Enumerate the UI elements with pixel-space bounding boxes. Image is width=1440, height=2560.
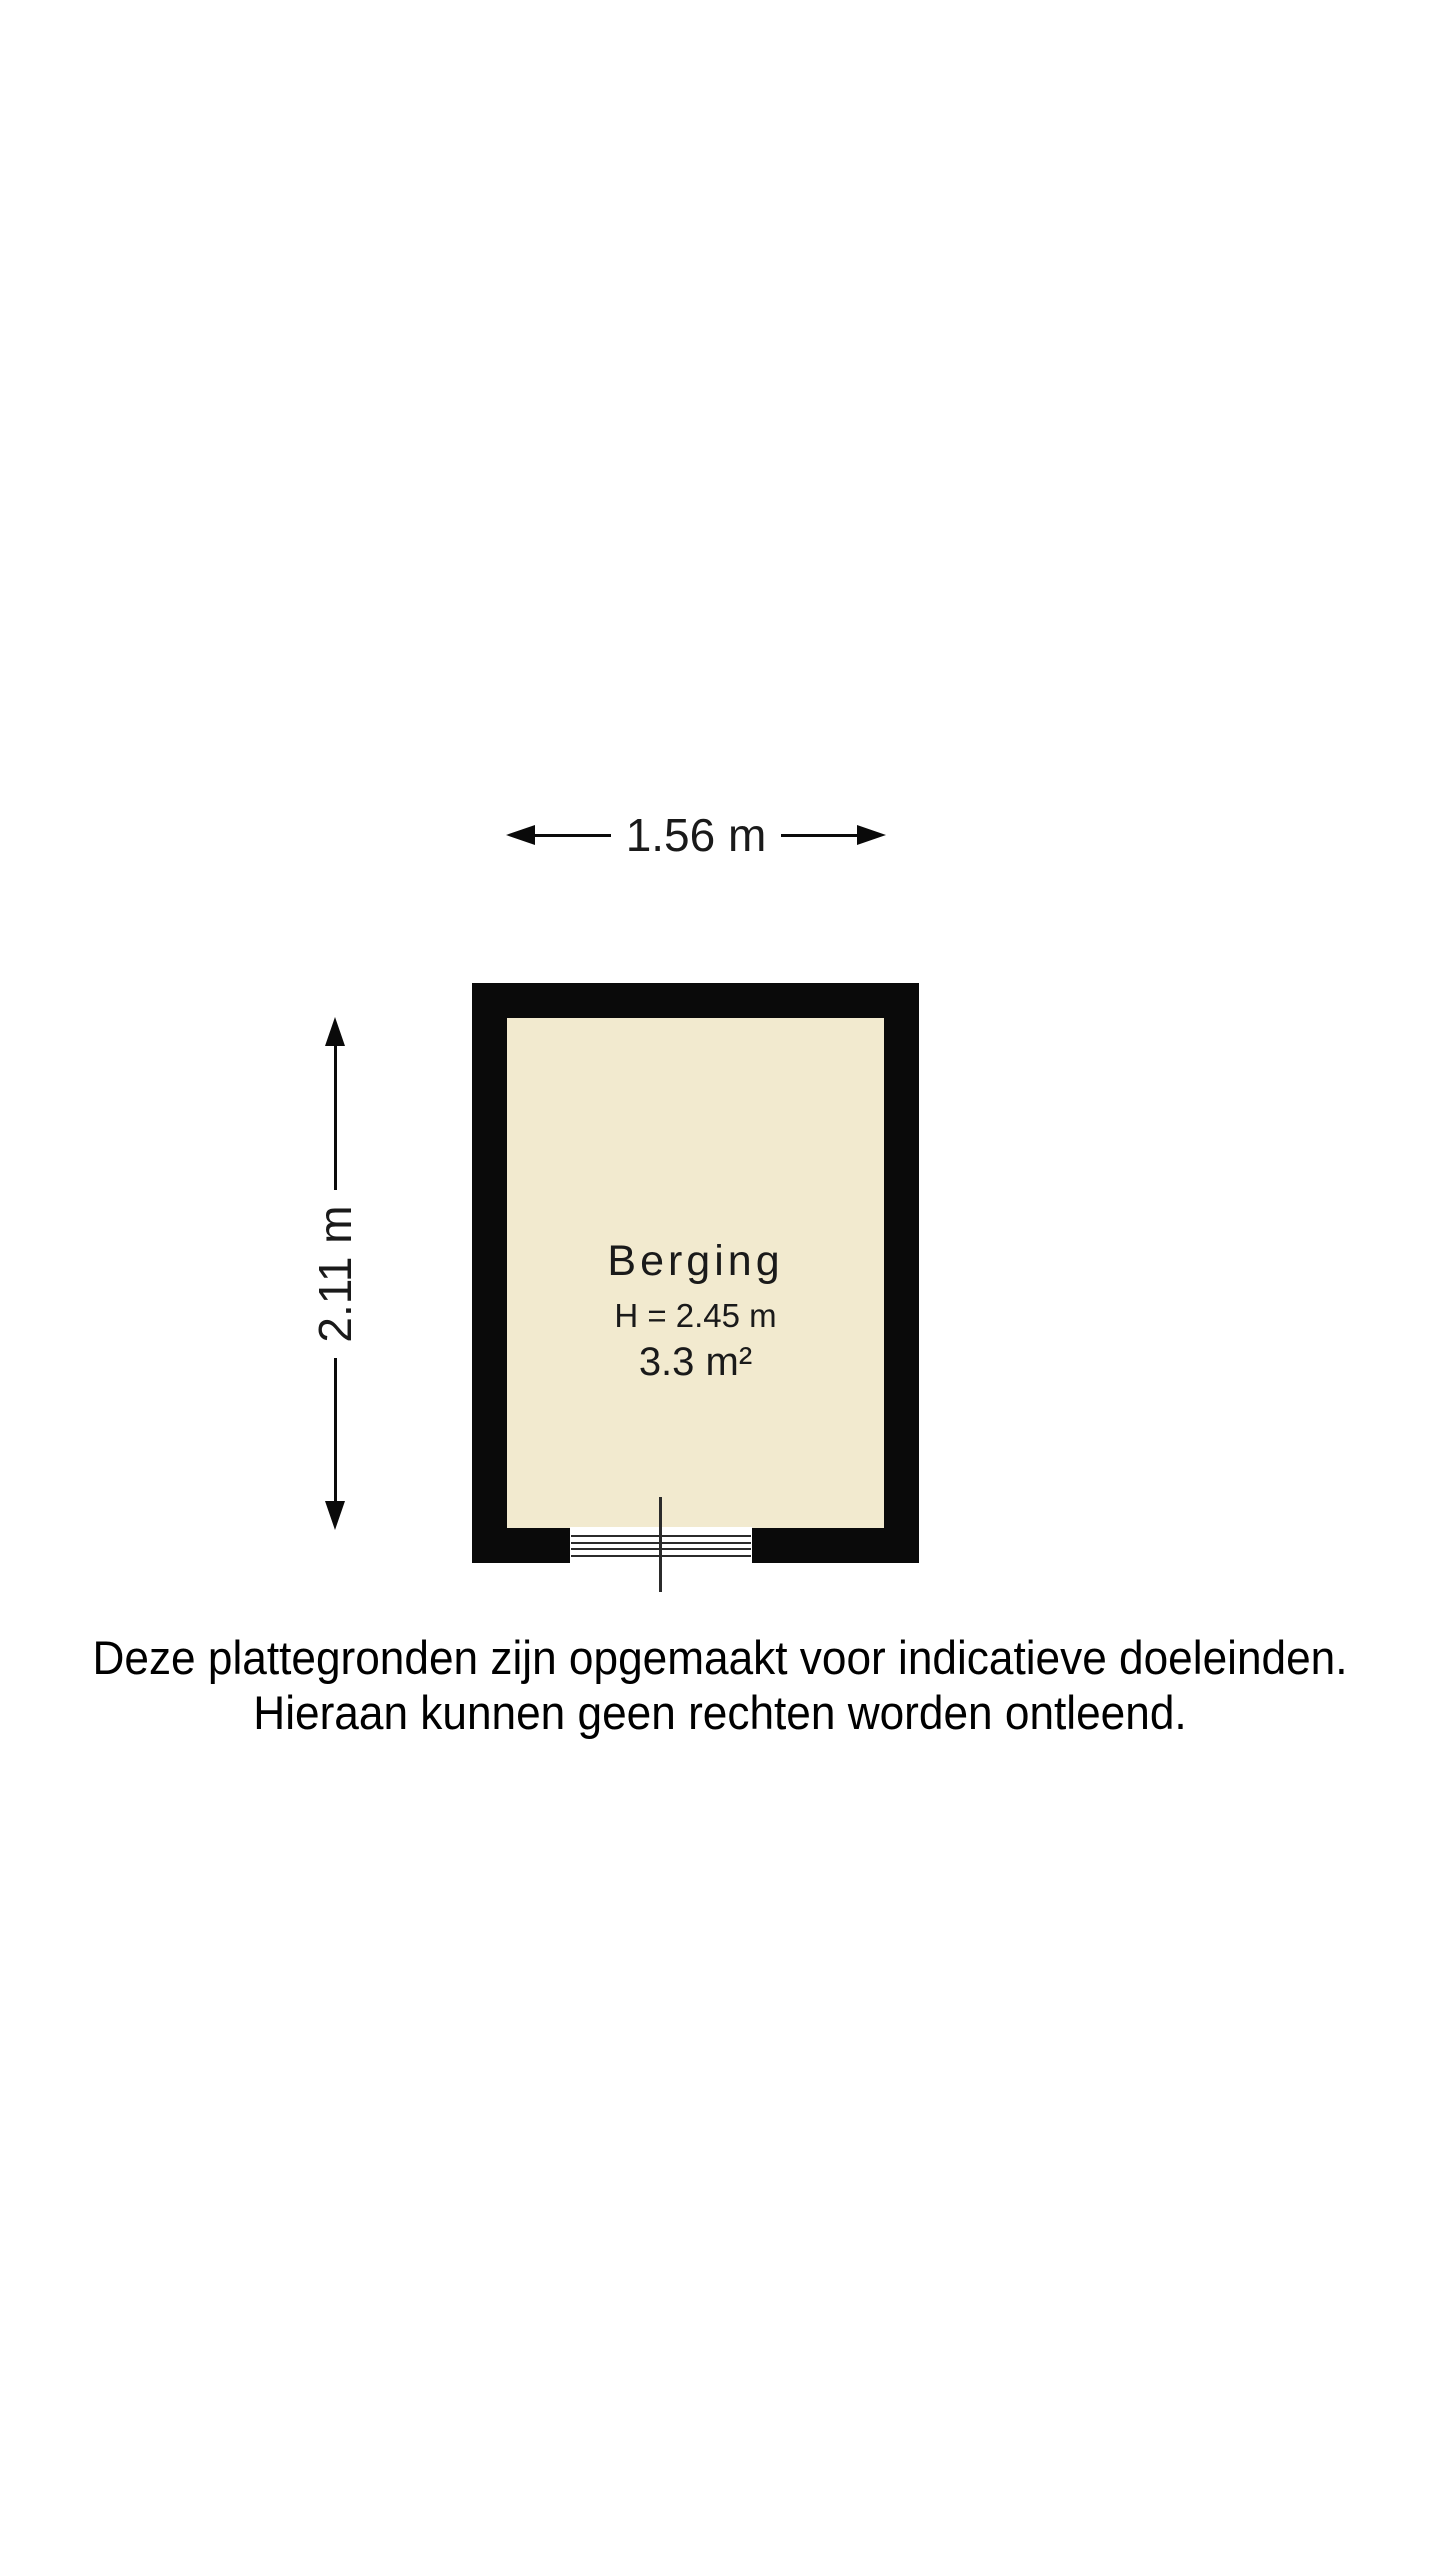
dimension-line <box>781 834 857 837</box>
height-dimension: 2.11 m <box>312 1017 358 1530</box>
room-label-block: Berging H = 2.45 m 3.3 m² <box>472 1238 919 1384</box>
disclaimer-line-1: Deze plattegronden zijn opgemaakt voor i… <box>43 1630 1397 1685</box>
disclaimer: Deze plattegronden zijn opgemaakt voor i… <box>0 1630 1440 1740</box>
dimension-line <box>535 834 611 837</box>
room-area: 3.3 m² <box>472 1340 919 1384</box>
floorplan-page: 1.56 m 2.11 m Berging H = 2.45 m 3.3 m² … <box>0 0 1440 2560</box>
dimension-line <box>334 1358 337 1502</box>
height-dimension-label-wrapper: 2.11 m <box>312 1190 358 1358</box>
disclaimer-line-2: Hieraan kunnen geen rechten worden ontle… <box>43 1685 1397 1740</box>
door-axis-line <box>659 1497 662 1592</box>
arrow-down-icon <box>325 1501 345 1530</box>
arrow-left-icon <box>506 825 535 845</box>
dimension-line <box>334 1046 337 1190</box>
room-ceiling-height: H = 2.45 m <box>472 1296 919 1336</box>
width-dimension-label: 1.56 m <box>611 812 782 858</box>
arrow-right-icon <box>857 825 886 845</box>
arrow-up-icon <box>325 1017 345 1046</box>
height-dimension-label: 2.11 m <box>312 1205 358 1342</box>
room-name: Berging <box>472 1238 919 1284</box>
width-dimension: 1.56 m <box>506 812 886 858</box>
